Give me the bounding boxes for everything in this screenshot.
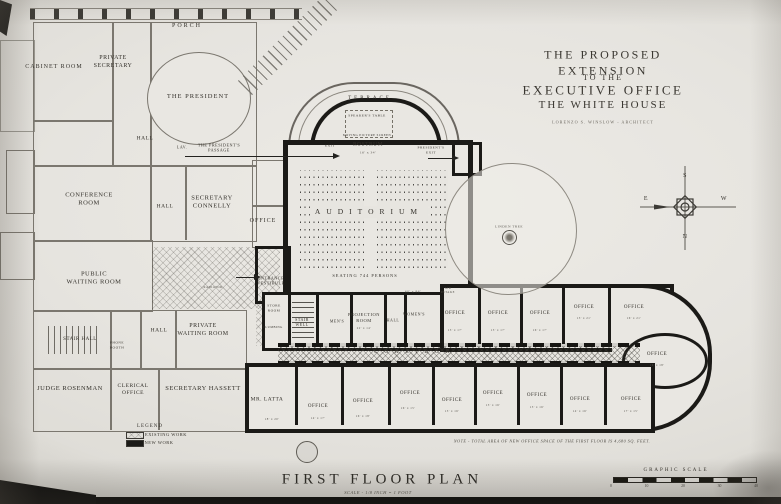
label-office-n5-dim: 16' x 21'	[627, 317, 642, 321]
label-office-s8-dim: 17' x 15'	[624, 410, 639, 414]
label-projection-dim: 22' x 14'	[357, 327, 372, 331]
label-porch: PORCH	[172, 23, 202, 31]
label-womens-room: WOMEN'S	[403, 311, 425, 316]
label-picture-screen: MOVING PICTURE SCREEN	[343, 134, 391, 138]
label-office-s3: OFFICE	[400, 391, 420, 398]
label-office-n1-dim: 15' x 17'	[448, 329, 463, 333]
scan-smudge-bottom-right	[712, 450, 781, 504]
label-presidents-passage: THE PRESIDENT'S PASSAGE	[198, 143, 240, 154]
label-office-s6-dim: 15' x 16'	[530, 406, 545, 410]
label-office-s3-dim: 16' x 15'	[401, 407, 416, 411]
label-office-s2: OFFICE	[353, 399, 373, 406]
label-office-east-oval-dim: 16' x 18'	[650, 364, 665, 368]
label-auditorium: AUDITORIUM	[310, 206, 428, 218]
label-mr-latta-dim: 18' x 20'	[265, 418, 280, 422]
label-secretary-connelly: SECRETARY CONNELLY	[191, 195, 233, 212]
label-mr-latta: MR. LATTA	[251, 396, 284, 403]
label-office-s6: OFFICE	[527, 393, 547, 400]
label-the-president: THE PRESIDENT	[167, 93, 229, 101]
label-rostrum-dim: 16' x 34'	[360, 151, 376, 156]
label-office-n3: OFFICE	[530, 311, 550, 318]
label-public-waiting-room: PUBLIC WAITING ROOM	[67, 271, 122, 288]
label-office-s4: OFFICE	[442, 398, 462, 405]
label-secretary-hassett: SECRETARY HASSETT	[165, 385, 240, 393]
label-lavatory: LAV.	[177, 144, 187, 149]
label-seating-capacity: SEATING 744 PERSONS	[332, 273, 397, 279]
label-office-s8: OFFICE	[621, 397, 641, 404]
room-labels-layer: PORCHCABINET ROOMPRIVATE SECRETARYTHE PR…	[0, 0, 781, 504]
label-plumbing: PLUMBING	[263, 326, 283, 330]
label-hall-east: HALL	[387, 317, 400, 322]
label-hall-south: HALL	[151, 327, 168, 334]
label-private-secretary: PRIVATE SECRETARY	[94, 55, 133, 71]
label-radiator: RADIATOR	[203, 286, 222, 290]
label-office-n3-dim: 16' x 17'	[533, 329, 548, 333]
label-air-intake: AIR INTAKE	[441, 287, 455, 295]
label-office-n2: OFFICE	[488, 311, 508, 318]
label-office-s5: OFFICE	[483, 391, 503, 398]
label-presidents-exit: PRESIDENT'S EXIT	[418, 145, 445, 154]
label-office-s4-dim: 15' x 16'	[445, 410, 460, 414]
label-office-east-oval: OFFICE	[647, 352, 667, 359]
label-auditorium-dim: 60' x 86'	[405, 290, 421, 295]
label-hall-center: HALL	[157, 203, 174, 210]
label-office-n4: OFFICE	[574, 305, 594, 312]
label-office-s7: OFFICE	[570, 397, 590, 404]
label-store-room: STORE ROOM	[267, 303, 281, 312]
label-office-west: OFFICE	[250, 218, 277, 226]
label-office-s1-dim: 14' x 17'	[311, 417, 326, 421]
label-cabinet-room: CABINET ROOM	[25, 64, 82, 72]
label-phone-booth: PHONE BOOTH	[110, 340, 125, 349]
label-stair-well: STAIR WELL	[295, 317, 309, 327]
label-office-s1: OFFICE	[308, 404, 328, 411]
label-office-s5-dim: 15' x 16'	[486, 404, 501, 408]
label-speakers-table: SPEAKER'S TABLE	[348, 114, 385, 119]
label-corridor: CORRIDOR	[374, 350, 456, 357]
label-private-waiting-room: PRIVATE WAITING ROOM	[177, 323, 228, 339]
label-stair-hall: STAIR HALL	[63, 337, 97, 344]
label-clerical-office: CLERICAL OFFICE	[118, 383, 149, 397]
label-office-s7-dim: 14' x 16'	[573, 410, 588, 414]
label-entrance-vestibule: ENTRANCE VESTIBULE	[257, 276, 284, 287]
label-office-n1: OFFICE	[445, 311, 465, 318]
label-office-s2-dim: 16' x 18'	[356, 415, 371, 419]
label-terrace: TERRACE	[348, 96, 392, 103]
floor-plan-sheet: S N E W THE PROPOSED EXTENSION TO THE EX…	[0, 0, 781, 504]
label-office-n2-dim: 15' x 17'	[491, 329, 506, 333]
label-linden-tree: LINDEN TREE	[495, 225, 523, 230]
scan-edge-bottom	[0, 497, 781, 504]
label-projection-room: PROJECTION ROOM	[348, 312, 380, 324]
label-office-n5: OFFICE	[624, 305, 644, 312]
label-judge-rosenman: JUDGE ROSENMAN	[37, 385, 103, 393]
label-office-n4-dim: 15' x 21'	[577, 317, 592, 321]
label-mens-room: MEN'S	[330, 318, 344, 323]
label-rostrum: ROSTRUM	[353, 141, 383, 148]
label-conference-room: CONFERENCE ROOM	[65, 192, 113, 209]
label-hall-northwest: HALL	[137, 135, 154, 142]
label-exit-west: EXIT	[325, 144, 335, 149]
